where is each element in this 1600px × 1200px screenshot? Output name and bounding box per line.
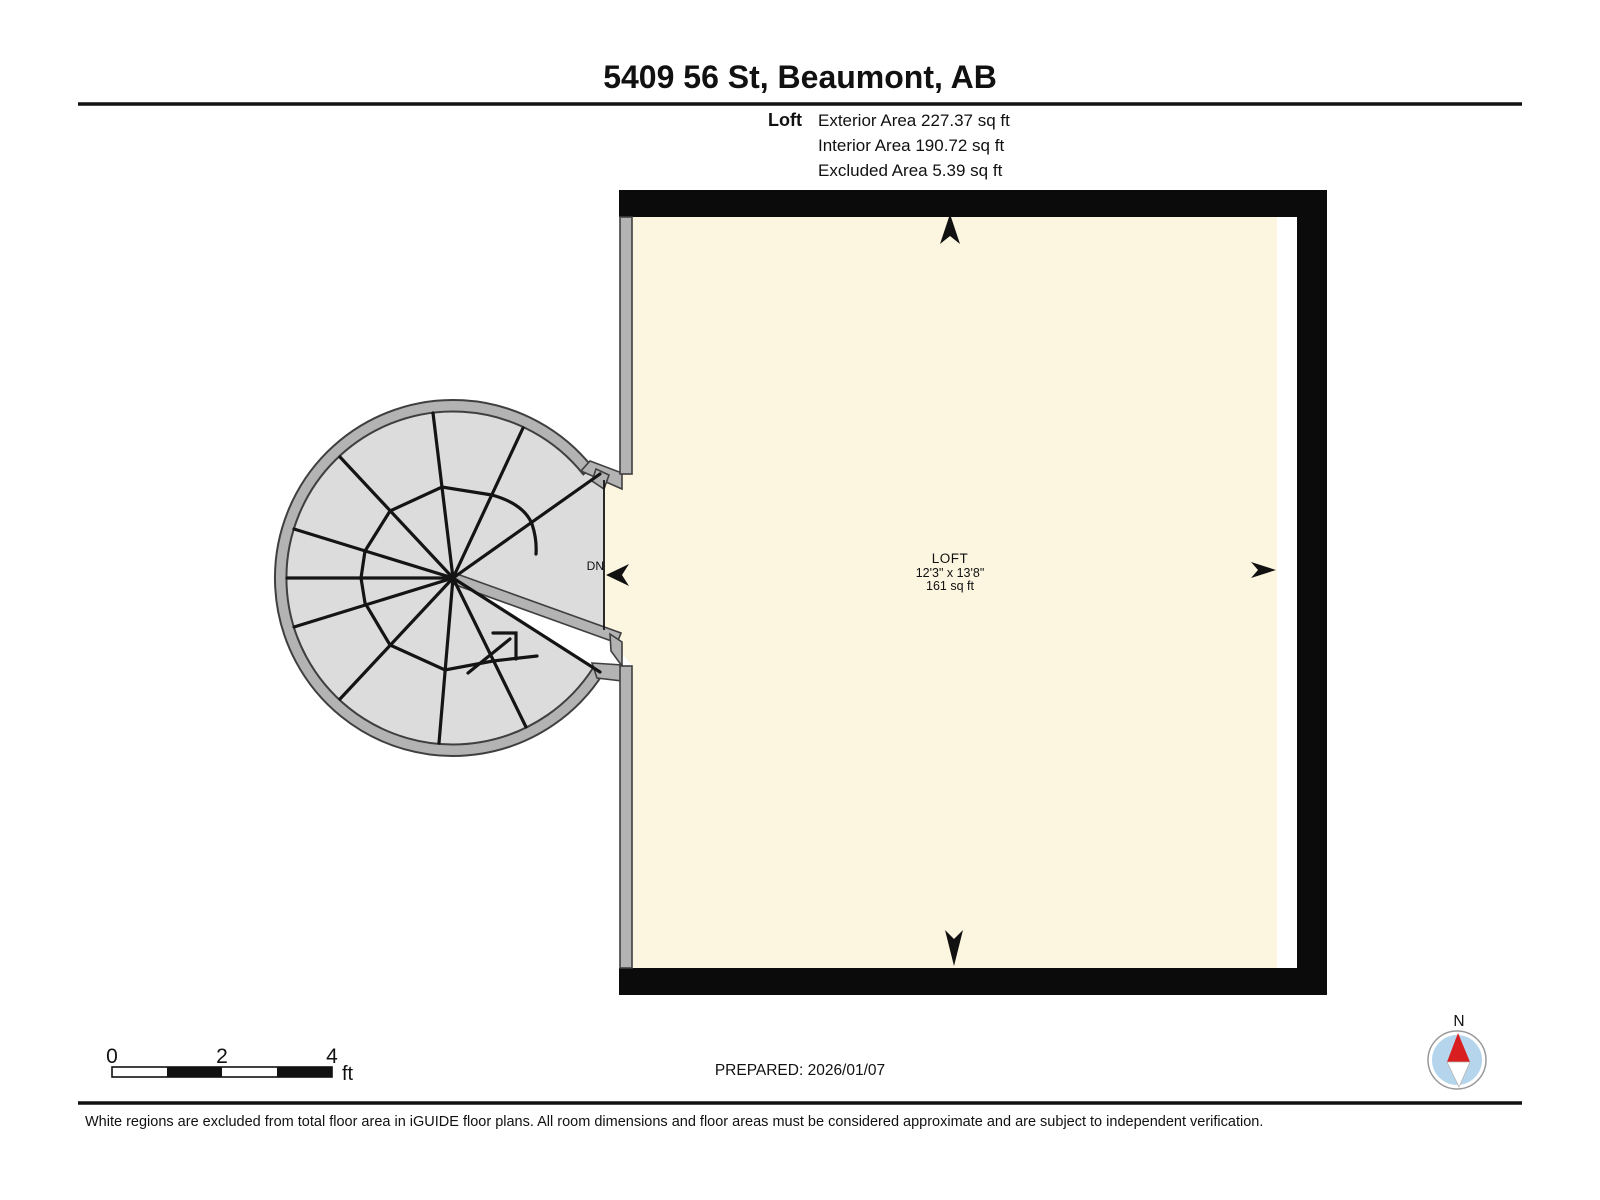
left-wall-lower <box>620 666 632 968</box>
floorplan-page: 5409 56 St, Beaumont, AB Loft Exterior A… <box>0 0 1600 1200</box>
scale-bar: 0 2 4 ft <box>106 1045 353 1085</box>
top-wall <box>619 190 1327 217</box>
compass: N <box>1428 1013 1486 1089</box>
page-title: 5409 56 St, Beaumont, AB <box>603 59 997 95</box>
compass-north-label: N <box>1453 1013 1464 1030</box>
right-wall <box>1297 190 1327 995</box>
room-area: 161 sq ft <box>926 579 974 593</box>
exterior-area-line: Exterior Area 227.37 sq ft <box>818 111 1010 130</box>
excluded-region-strip <box>1277 217 1297 968</box>
room-dimensions: 12'3" x 13'8" <box>916 566 985 580</box>
stairs-down-label: DN <box>587 559 604 573</box>
scale-bar-segment <box>167 1067 222 1077</box>
scale-tick-4: 4 <box>326 1045 338 1068</box>
excluded-area-line: Excluded Area 5.39 sq ft <box>818 161 1003 180</box>
floor-label: Loft <box>768 110 802 130</box>
disclaimer: White regions are excluded from total fl… <box>85 1114 1263 1130</box>
left-wall-upper <box>620 217 632 474</box>
scale-bar-segment <box>277 1067 332 1077</box>
interior-area-line: Interior Area 190.72 sq ft <box>818 136 1004 155</box>
scale-tick-2: 2 <box>216 1045 228 1068</box>
prepared-date: PREPARED: 2026/01/07 <box>715 1062 885 1079</box>
bottom-wall <box>619 968 1327 995</box>
room-name: LOFT <box>932 551 969 566</box>
scale-unit: ft <box>342 1063 354 1085</box>
stair-bottom-connector <box>592 663 622 681</box>
floorplan-canvas: 5409 56 St, Beaumont, AB Loft Exterior A… <box>0 0 1600 1200</box>
scale-tick-0: 0 <box>106 1045 118 1068</box>
